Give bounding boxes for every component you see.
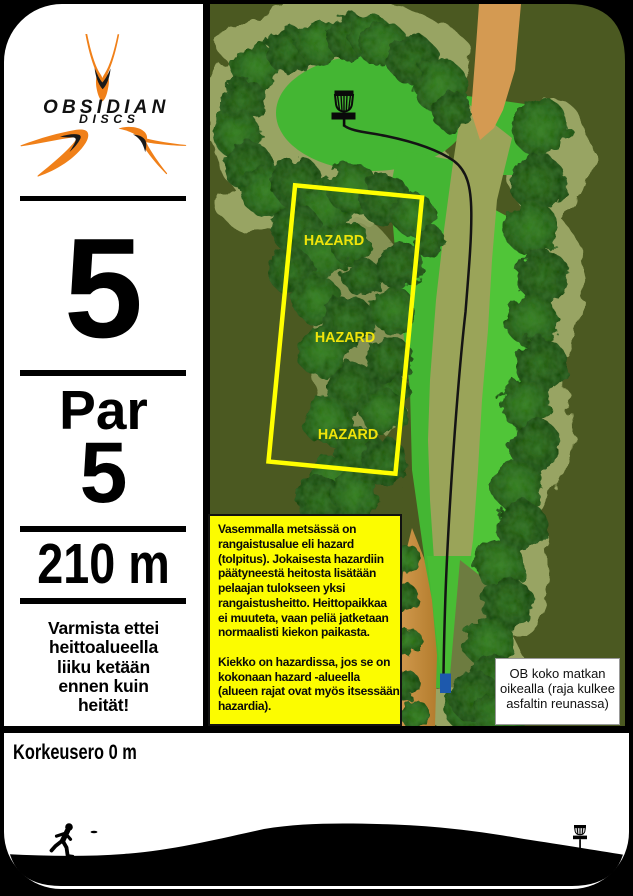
svg-text:HAZARD: HAZARD — [304, 233, 364, 249]
svg-text:DISCS: DISCS — [79, 112, 140, 126]
svg-text:HAZARD: HAZARD — [315, 330, 375, 346]
svg-text:HAZARD: HAZARD — [318, 427, 378, 443]
